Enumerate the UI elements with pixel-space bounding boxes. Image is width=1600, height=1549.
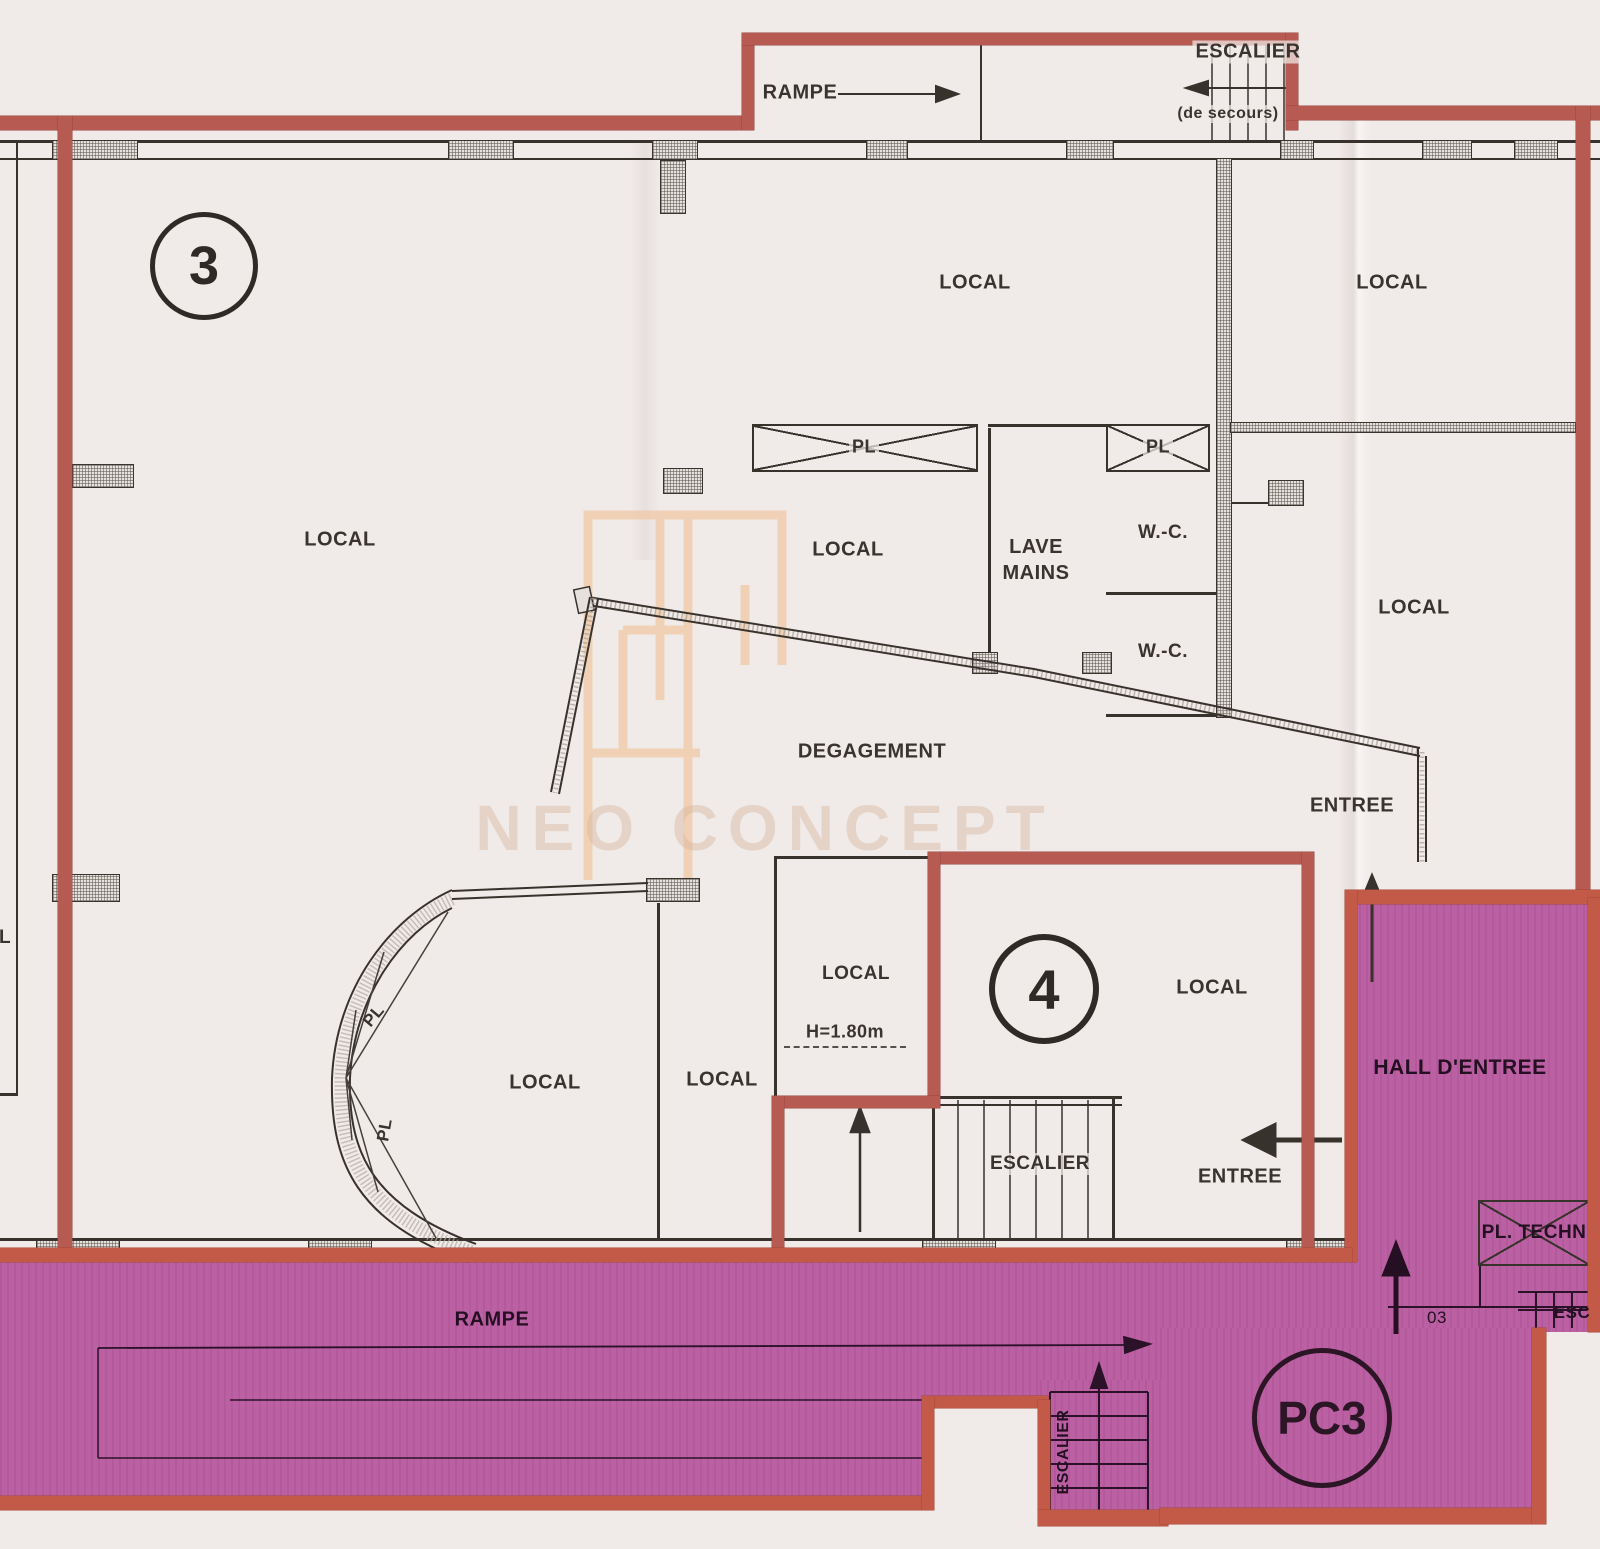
red-ramp-left — [742, 33, 754, 130]
pier-top-3-stub — [660, 160, 686, 214]
pier-top-4 — [866, 140, 908, 160]
wall-left-slant — [551, 597, 598, 794]
wall-stair4-top-b — [932, 1104, 1122, 1106]
red-hall-left — [1345, 890, 1357, 1262]
zone-hall-entree — [1352, 902, 1600, 1332]
wall-left-stub — [0, 1093, 18, 1096]
pc3-number: PC3 — [1277, 1391, 1366, 1445]
red-hall-top — [1345, 890, 1600, 904]
arrow-escalier-top — [1186, 81, 1292, 95]
label-pl-a: PL — [849, 437, 879, 458]
label-entree-upper: ENTREE — [1310, 795, 1394, 818]
label-escalier-partial: ESC — [1554, 1303, 1590, 1323]
pc3-badge: PC3 — [1252, 1348, 1392, 1488]
red-hall-right — [1588, 898, 1600, 1332]
red-top-left — [0, 116, 745, 130]
wall-smallroom-top — [774, 856, 930, 859]
label-wc-lower: W.-C. — [1138, 641, 1188, 663]
wall-smallroom-left — [774, 856, 777, 1096]
red-stair-bottom — [1038, 1510, 1168, 1526]
label-wc-upper: W.-C. — [1138, 522, 1188, 544]
label-escalier-unit4: ESCALIER — [987, 1153, 1093, 1175]
arrow-entree-unit4 — [1246, 1126, 1342, 1154]
red-right-wall — [1576, 106, 1590, 902]
red-notch-top — [922, 1396, 1048, 1408]
unit-4-number: 4 — [1028, 957, 1059, 1022]
arrow-rampe-top — [838, 86, 958, 102]
pier-top-7 — [1422, 140, 1472, 160]
label-escalier-top: ESCALIER — [1192, 41, 1303, 64]
label-local-right: LOCAL — [1378, 597, 1449, 620]
label-local-center: LOCAL — [812, 539, 883, 562]
label-pl-b: PL — [1143, 437, 1173, 458]
wall-wc-separator — [1106, 592, 1218, 595]
label-local-top-center: LOCAL — [939, 272, 1010, 295]
pier-wc-wall — [1216, 158, 1232, 718]
floor-plan-scan: NEO CONCEPT — [0, 0, 1600, 1549]
label-escalier-bottom: ESCALIER — [1055, 1410, 1073, 1495]
wall-locals-divider — [657, 903, 660, 1240]
label-rampe-top: RAMPE — [763, 82, 838, 105]
label-rampe-bottom: RAMPE — [455, 1309, 530, 1332]
red-notch-left — [922, 1396, 934, 1510]
red-unit4-ext-left — [772, 1096, 784, 1262]
pier-left-1 — [72, 464, 134, 488]
pier-top-3 — [652, 140, 698, 160]
pier-rightcol-wall — [1230, 422, 1576, 433]
wall-stair4-right — [1112, 1098, 1115, 1240]
wall-bottom-unit3 — [0, 1238, 1352, 1241]
wall-lave-left — [988, 428, 991, 662]
unit-4-badge: 4 — [989, 934, 1099, 1044]
paper-crease-top — [630, 140, 660, 560]
red-smallroom-bottom — [772, 1096, 940, 1108]
label-height-note: H=1.80m — [806, 1022, 884, 1043]
label-entree-unit4: ENTREE — [1198, 1166, 1282, 1189]
red-left-wall — [58, 116, 72, 1260]
label-degagement: DEGAGEMENT — [798, 741, 946, 764]
wall-ramp-divider — [980, 36, 982, 140]
label-local-small-room: LOCAL — [822, 963, 890, 985]
wall-curved — [332, 883, 648, 1262]
pier-top-2 — [448, 140, 514, 160]
wall-stair4-left — [932, 1098, 935, 1240]
pier-top-8 — [1514, 140, 1558, 160]
label-hall-entree: HALL D'ENTREE — [1373, 1056, 1546, 1080]
red-unit4-right — [1302, 852, 1314, 1262]
label-local-unit4: LOCAL — [1176, 977, 1247, 1000]
label-left-fragment: L — [0, 927, 11, 949]
wall-top-inner — [0, 158, 1600, 160]
red-unit4-top — [928, 852, 1314, 864]
label-lave-mains: LAVE MAINS — [994, 534, 1078, 586]
label-door-number: 03 — [1427, 1308, 1447, 1328]
pier-lave-foot-2 — [1082, 652, 1112, 674]
red-bottomright-bottom — [1160, 1508, 1544, 1524]
notch-white-bottom — [934, 1408, 1038, 1549]
label-local-curve-left: LOCAL — [509, 1072, 580, 1095]
wall-left-neighbor — [16, 140, 18, 1095]
label-escalier-top-sub: (de secours) — [1174, 105, 1281, 123]
red-strip-bottom — [0, 1496, 934, 1510]
pier-lave-foot-1 — [972, 652, 998, 674]
pier-curve-top — [646, 878, 700, 902]
wall-wc-bottom — [1106, 714, 1218, 717]
unit-3-badge: 3 — [150, 212, 258, 320]
label-local-main: LOCAL — [304, 529, 375, 552]
red-strip-top — [0, 1248, 1352, 1262]
red-stair-divider — [1038, 1400, 1050, 1512]
label-pl-techn: PL. TECHN — [1482, 1222, 1587, 1244]
red-unit4-left — [928, 852, 940, 1108]
pier-top-6 — [1280, 140, 1314, 160]
label-pl-curve-upper: PL — [359, 1001, 389, 1031]
notch-white-right — [1546, 1332, 1600, 1549]
wall-top-outer — [0, 140, 1600, 143]
red-top-right — [1286, 106, 1600, 120]
pier-floating — [663, 468, 703, 494]
wall-step-line — [1230, 502, 1272, 504]
wall-stair4-top-a — [932, 1096, 1122, 1099]
pier-top-5 — [1066, 140, 1114, 160]
red-bottomright-right — [1532, 1328, 1546, 1524]
unit-3-number: 3 — [189, 235, 219, 297]
arrow-unit4-up — [851, 1108, 869, 1232]
height-note-underline — [784, 1046, 906, 1048]
label-pl-curve-lower: PL — [373, 1117, 397, 1143]
label-local-top-right: LOCAL — [1356, 272, 1427, 295]
label-local-curve-right: LOCAL — [686, 1069, 757, 1092]
pier-step — [1268, 480, 1304, 506]
wall-lave-top — [988, 424, 1110, 427]
